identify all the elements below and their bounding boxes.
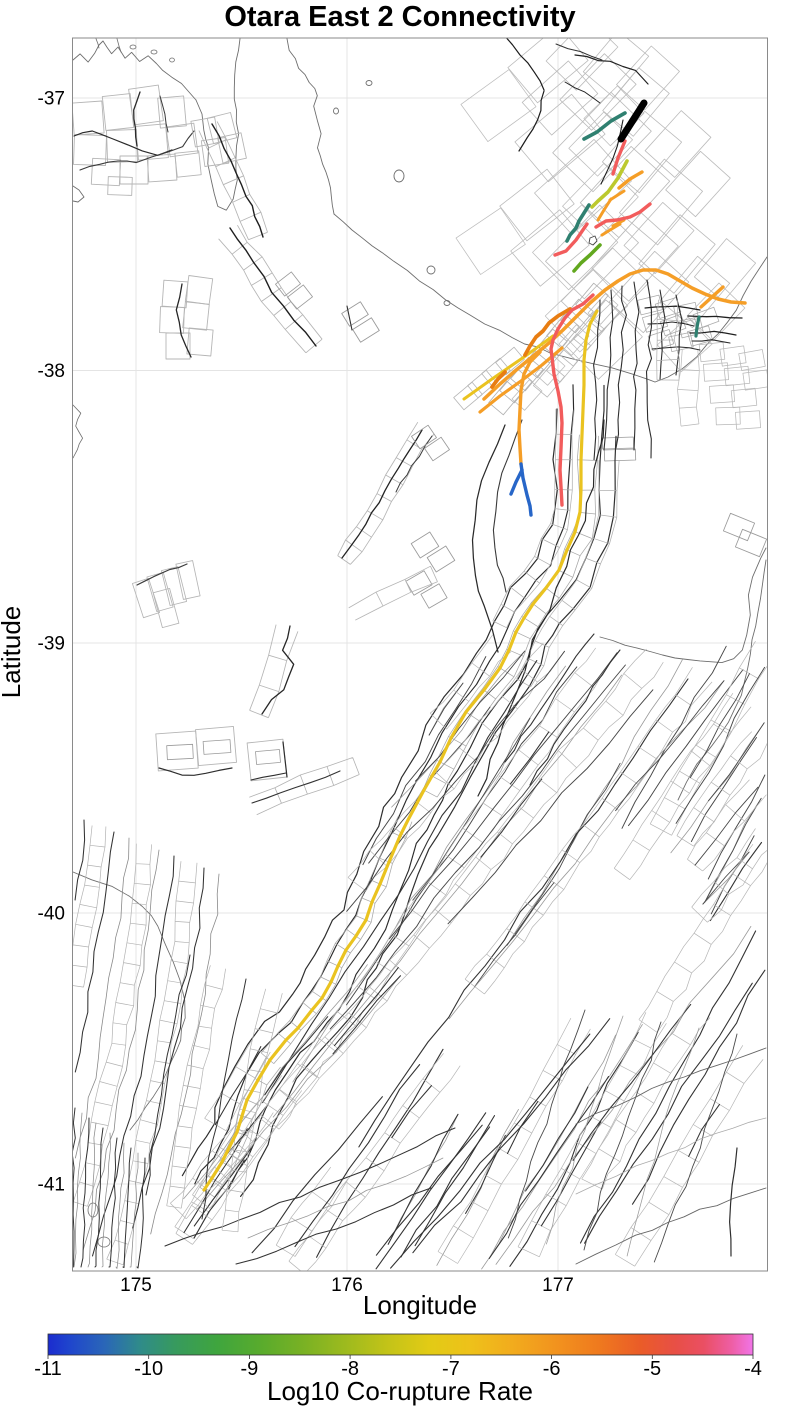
svg-text:-4: -4 <box>744 1358 762 1380</box>
svg-text:-37: -37 <box>38 89 65 110</box>
svg-text:-10: -10 <box>134 1358 163 1380</box>
svg-text:Otara East 2 Connectivity: Otara East 2 Connectivity <box>224 1 575 33</box>
svg-text:-11: -11 <box>34 1358 61 1380</box>
svg-text:Latitude: Latitude <box>0 606 26 699</box>
svg-text:-38: -38 <box>38 361 65 382</box>
svg-text:Log10 Co-rupture Rate: Log10 Co-rupture Rate <box>267 1376 533 1406</box>
svg-text:-39: -39 <box>38 634 65 655</box>
svg-text:177: 177 <box>542 1275 574 1296</box>
svg-text:-40: -40 <box>38 904 65 925</box>
svg-text:175: 175 <box>120 1275 152 1296</box>
svg-text:176: 176 <box>331 1275 363 1296</box>
svg-text:-41: -41 <box>38 1175 65 1196</box>
svg-text:-6: -6 <box>543 1358 561 1380</box>
svg-text:Longitude: Longitude <box>363 1290 477 1320</box>
svg-text:-9: -9 <box>241 1358 259 1380</box>
svg-text:-5: -5 <box>643 1358 661 1380</box>
